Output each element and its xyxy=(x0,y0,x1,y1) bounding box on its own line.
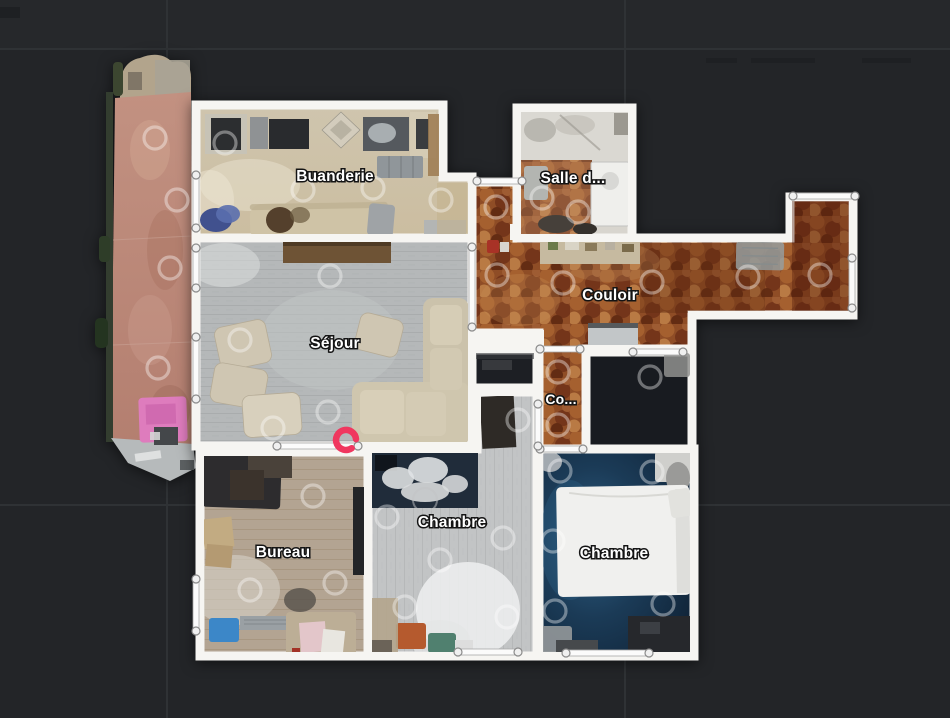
door-marker xyxy=(562,649,653,657)
door-marker xyxy=(473,177,526,185)
balcony-small-object xyxy=(150,432,160,440)
room-label-couloir: Couloir xyxy=(582,287,638,304)
room-label-sejour: Séjour xyxy=(310,335,359,352)
door-marker xyxy=(192,333,200,403)
room-label-couloir-2: Co... xyxy=(545,391,576,407)
window-marker xyxy=(789,192,859,200)
floorplan-viewport[interactable]: Buanderie Salle d... Couloir Séjour Co..… xyxy=(0,0,950,718)
window-marker xyxy=(192,171,200,232)
door-marker xyxy=(536,445,587,453)
door-marker xyxy=(192,244,200,292)
door-marker xyxy=(629,348,687,356)
door-marker xyxy=(454,648,522,656)
room-label-chambre-2: Chambre xyxy=(580,545,649,562)
door-marker xyxy=(536,345,584,353)
door-marker xyxy=(534,400,542,450)
balcony-top-shadow xyxy=(128,72,142,90)
room-label-salle-de-bain: Salle d... xyxy=(541,170,606,187)
window-marker xyxy=(192,575,200,635)
room-label-chambre-1: Chambre xyxy=(418,514,487,531)
room-label-bureau: Bureau xyxy=(256,544,311,561)
floorplan-canvas: Buanderie Salle d... Couloir Séjour Co..… xyxy=(0,0,950,718)
bed xyxy=(556,485,695,597)
window-marker xyxy=(848,254,856,312)
wall-filler xyxy=(466,330,544,353)
door-marker xyxy=(468,243,476,331)
room-label-buanderie: Buanderie xyxy=(296,168,374,185)
background-top-band xyxy=(0,0,950,49)
balcony-bottom-shadow xyxy=(180,460,194,470)
